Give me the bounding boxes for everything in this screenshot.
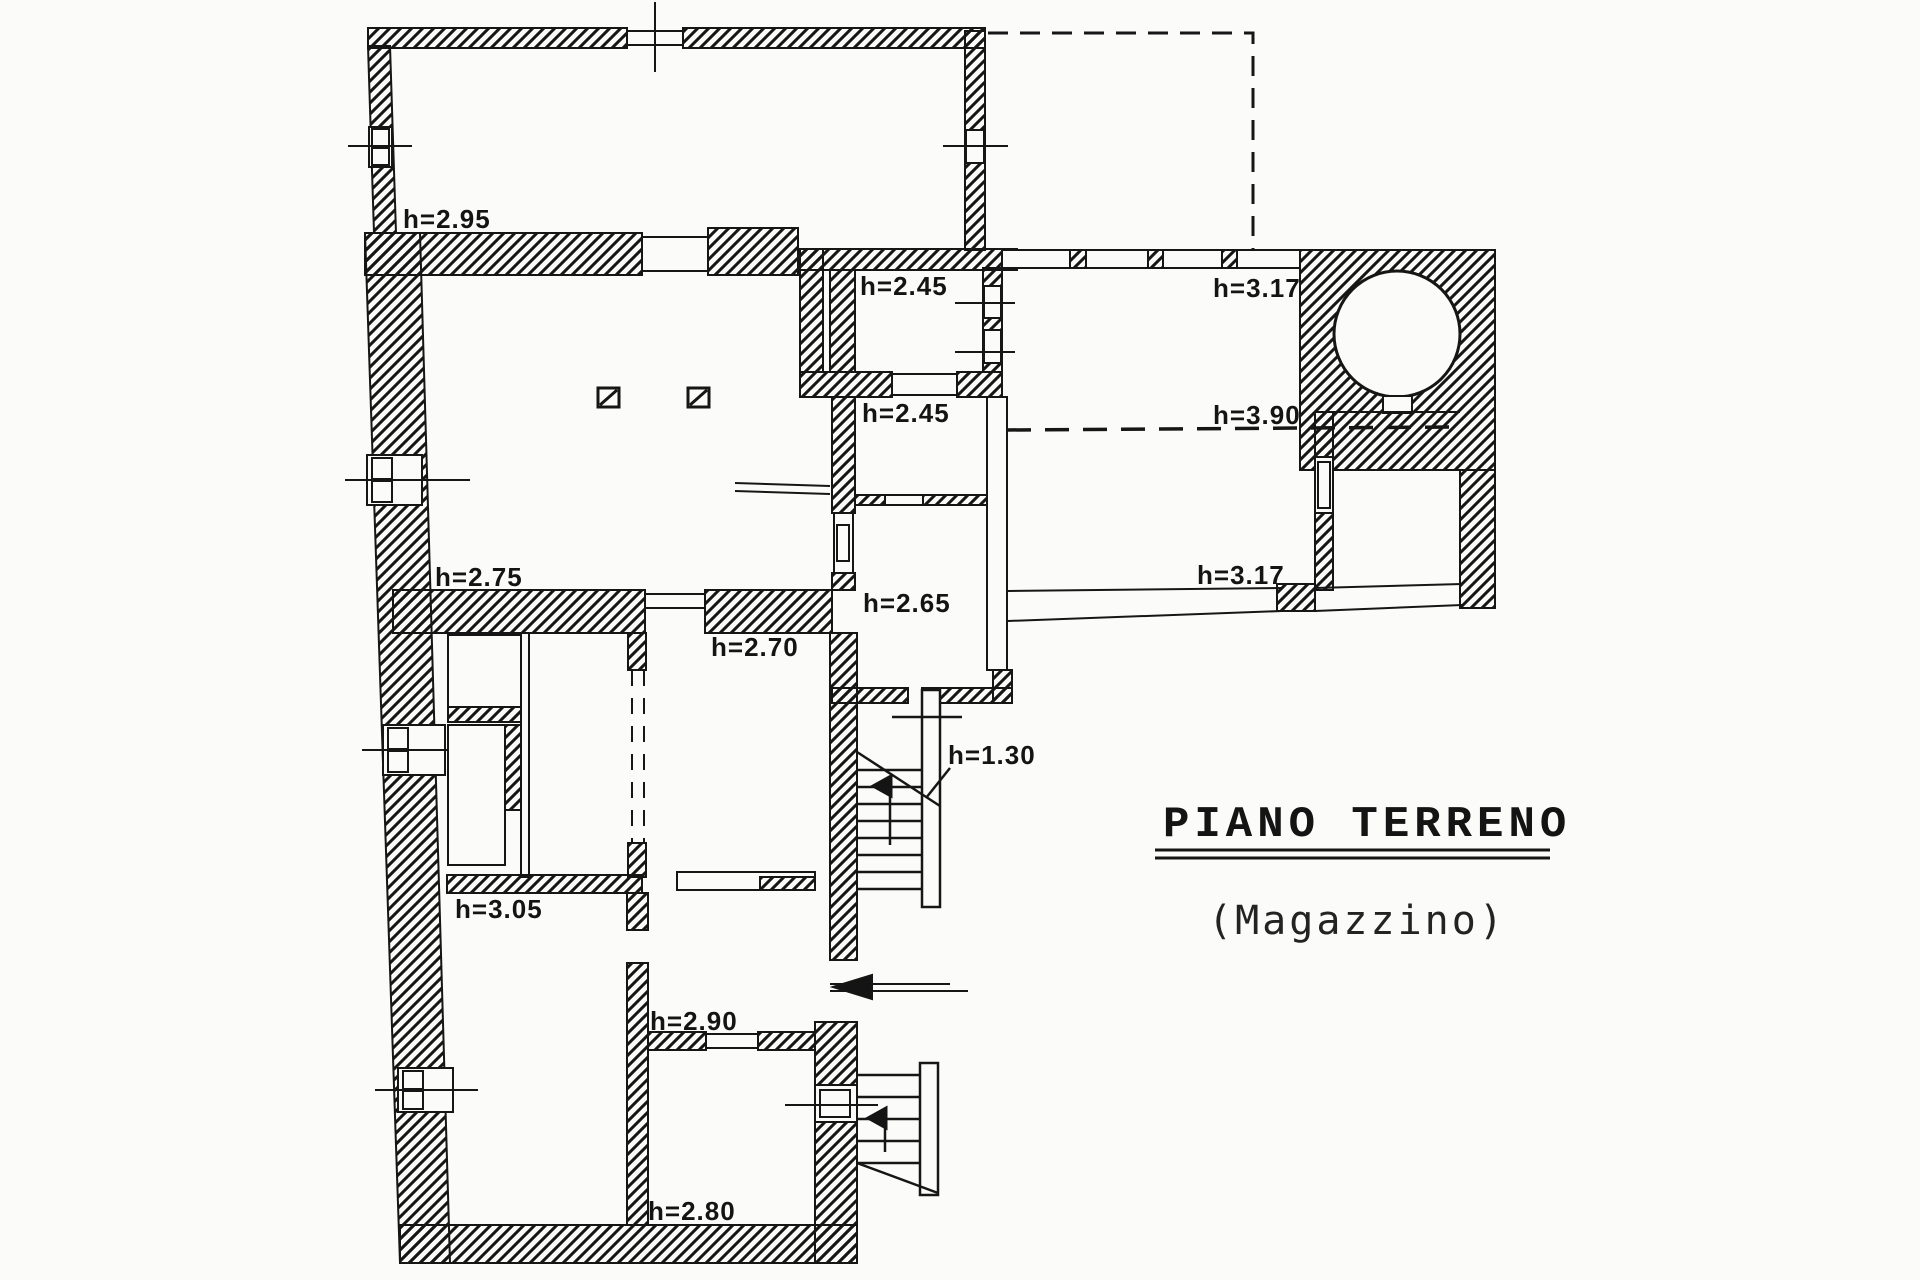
silo-circle: [1334, 271, 1460, 397]
silo-pedestal: [1383, 396, 1412, 413]
label-h280: h=2.80: [648, 1196, 736, 1226]
closet-2: [448, 725, 505, 865]
label-h390: h=3.90: [1213, 400, 1301, 430]
label-h130: h=1.30: [948, 740, 1036, 770]
label-h265: h=2.65: [863, 588, 951, 618]
label-h245-mid: h=2.45: [862, 398, 950, 428]
closet-1: [448, 635, 522, 707]
drawing-subtitle: (Magazzino): [1208, 898, 1506, 944]
label-h275: h=2.75: [435, 562, 523, 592]
floor-plan-drawing: h=2.95 h=2.45 h=3.17 h=2.45 h=3.90 h=2.7…: [0, 0, 1920, 1280]
label-h245-top: h=2.45: [860, 271, 948, 301]
label-h317-top: h=3.17: [1213, 273, 1301, 303]
label-h290: h=2.90: [650, 1006, 738, 1036]
label-h270: h=2.70: [711, 632, 799, 662]
pillar-icon: [688, 388, 709, 407]
label-h295: h=2.95: [403, 204, 491, 234]
label-h317-bottom: h=3.17: [1197, 560, 1285, 590]
scanned-floor-plan-page: h=2.95 h=2.45 h=3.17 h=2.45 h=3.90 h=2.7…: [0, 0, 1920, 1280]
drawing-title: PIANO TERRENO: [1163, 800, 1571, 850]
window-wing-left-2: [984, 330, 1001, 363]
pillar-icon: [598, 388, 619, 407]
label-h305: h=3.05: [455, 894, 543, 924]
paper-background: [0, 0, 1920, 1280]
